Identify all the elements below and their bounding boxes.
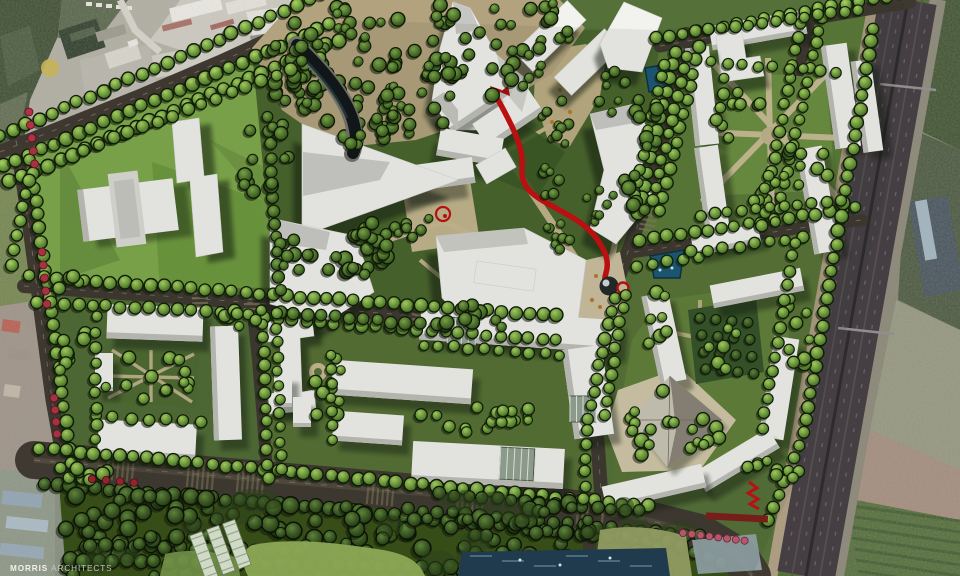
svg-text:MORRISARCHITECTS: MORRISARCHITECTS bbox=[10, 564, 112, 573]
